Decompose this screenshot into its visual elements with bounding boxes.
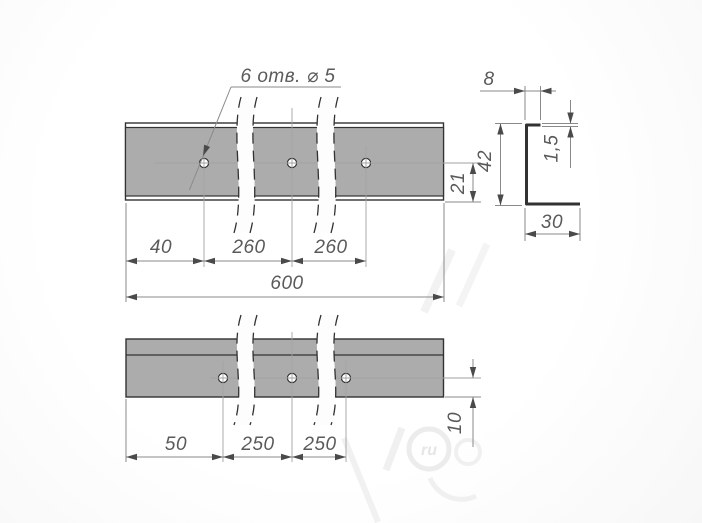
dim-arrow [281, 454, 292, 460]
dim-arrow [281, 258, 292, 264]
watermark-stroke [459, 244, 487, 306]
dim-40-label: 40 [150, 237, 172, 258]
dim-arrow [223, 454, 234, 460]
technical-drawing: ru 6 отв. ⌀ 5 [0, 0, 702, 523]
dim-arrow [497, 195, 503, 206]
dim-250b-label: 250 [302, 434, 336, 455]
watermark-arc [430, 478, 476, 499]
dim-arrow [567, 127, 573, 138]
dim-30-label: 30 [541, 212, 563, 233]
dim-260b-label: 260 [313, 237, 347, 258]
dim-arrow [541, 88, 552, 94]
dim-arrow [335, 454, 346, 460]
dim-250a-label: 250 [240, 434, 274, 455]
dim-1-5-label: 1,5 [542, 135, 563, 163]
dim-arrow [204, 258, 215, 264]
dim-arrow [567, 113, 573, 124]
dim-arrow [470, 397, 476, 408]
dim-arrow [433, 294, 444, 300]
drawing-canvas: ru 6 отв. ⌀ 5 [0, 0, 702, 523]
dim-arrow [126, 454, 137, 460]
dim-arrow [525, 231, 536, 237]
dim-600-label: 600 [270, 273, 303, 294]
top-view-face [126, 128, 444, 197]
watermark-stroke [386, 428, 402, 470]
dim-arrow [514, 88, 525, 94]
dim-10-label: 10 [445, 412, 466, 434]
watermark-ring-small [456, 440, 480, 464]
dim-8-label: 8 [483, 69, 494, 90]
dim-arrow [569, 231, 580, 237]
dim-arrow [355, 258, 366, 264]
top-view [126, 97, 482, 267]
dim-arrow [470, 191, 476, 202]
dim-arrow [470, 367, 476, 378]
dim-arrow [292, 454, 303, 460]
callout-label: 6 отв. ⌀ 5 [241, 66, 336, 87]
dim-arrow [497, 124, 503, 135]
watermark-stroke [424, 250, 452, 312]
watermark-text: ru [421, 442, 437, 459]
dim-arrow [212, 454, 223, 460]
dim-42-label: 42 [475, 150, 496, 172]
watermark-stroke [344, 438, 378, 522]
dim-21-label: 21 [448, 172, 469, 195]
dim-arrow [126, 294, 137, 300]
dim-50-label: 50 [165, 434, 187, 455]
dim-arrow [126, 258, 137, 264]
dim-260a-label: 260 [231, 237, 265, 258]
bottom-view-face [126, 339, 444, 397]
dim-arrow [193, 258, 204, 264]
dim-arrow [292, 258, 303, 264]
section-view: 8 1,5 42 30 [475, 69, 580, 241]
